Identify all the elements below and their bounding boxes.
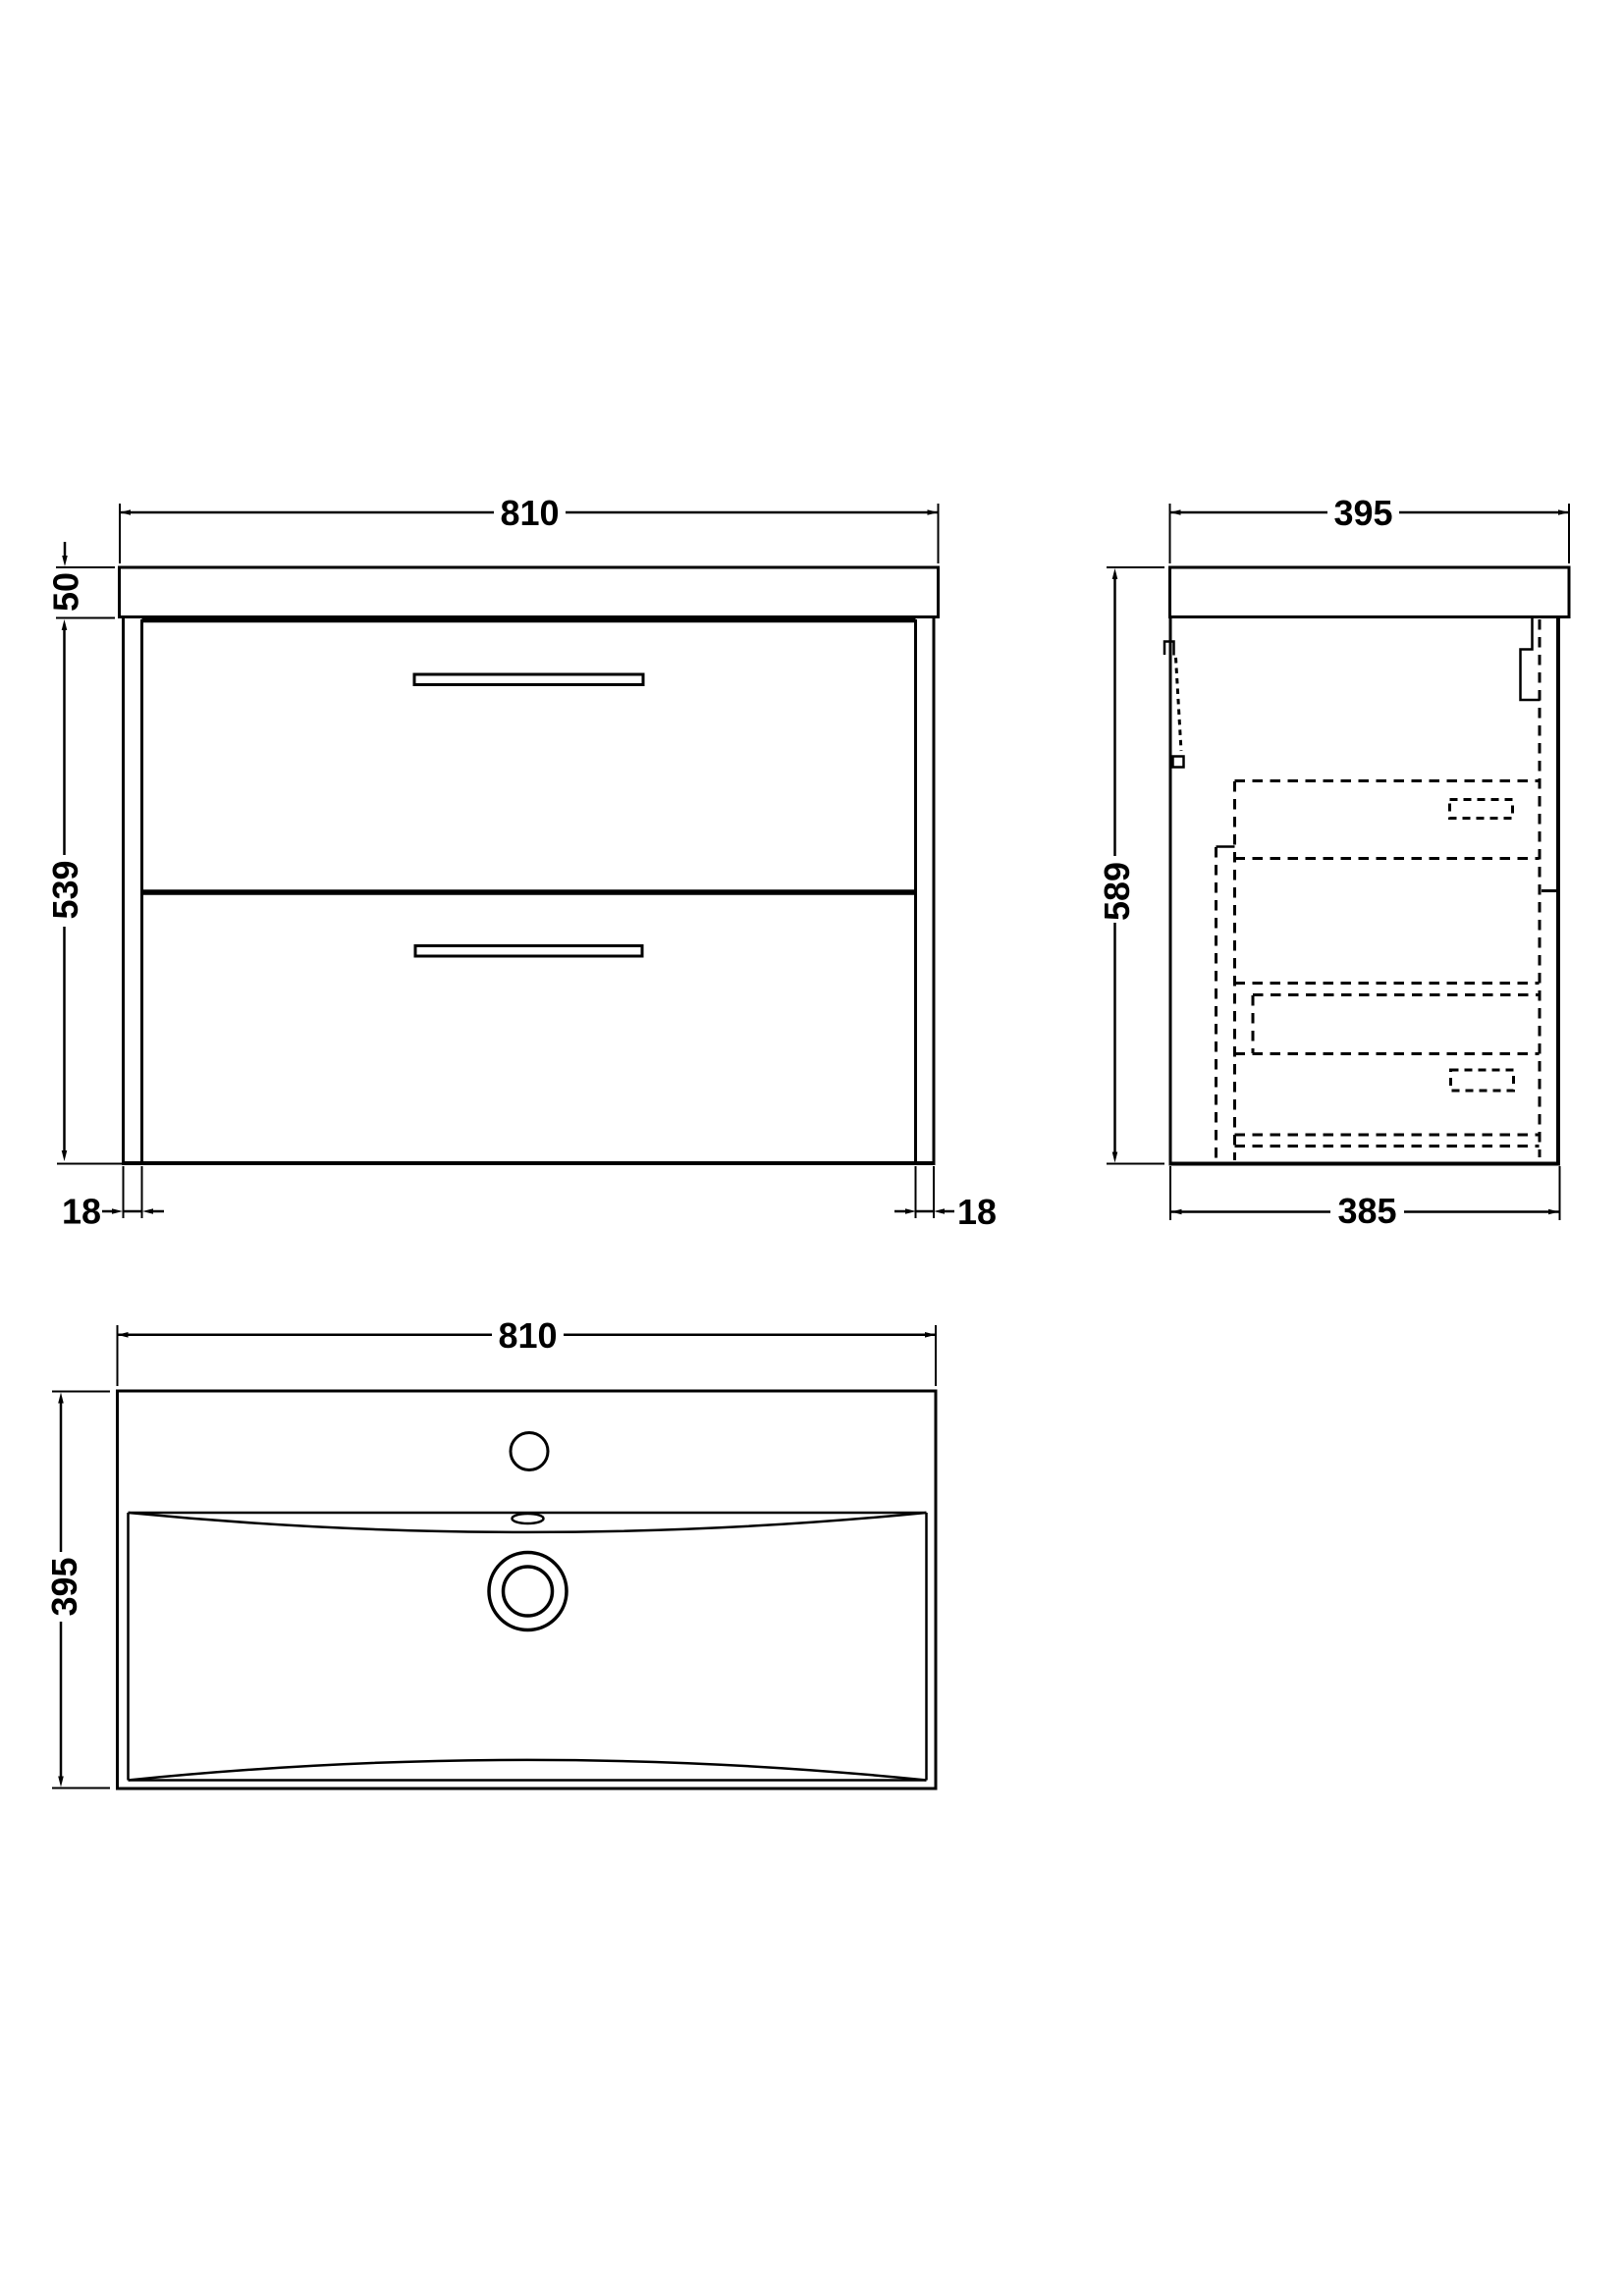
svg-text:395: 395 [44, 1557, 84, 1616]
svg-text:589: 589 [1097, 862, 1137, 921]
svg-text:810: 810 [498, 1315, 557, 1356]
svg-text:50: 50 [46, 572, 86, 612]
svg-text:810: 810 [500, 493, 559, 533]
svg-text:18: 18 [62, 1192, 101, 1232]
svg-text:385: 385 [1337, 1191, 1396, 1231]
svg-text:395: 395 [1333, 493, 1392, 533]
svg-text:18: 18 [957, 1192, 997, 1232]
svg-text:539: 539 [45, 860, 85, 919]
